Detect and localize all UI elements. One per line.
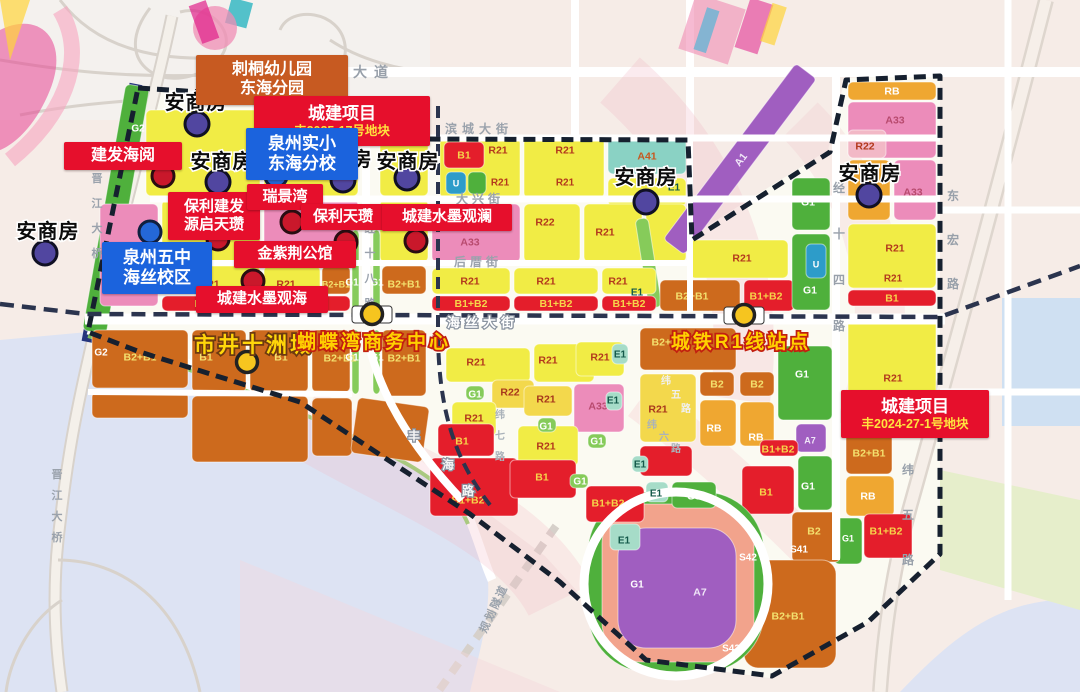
callout-chengjian-2024: 城建项目丰2024-27-1号地块: [841, 390, 989, 438]
callout-text: 海丝校区: [123, 268, 191, 288]
callout-baoli-tianzan: 保利天瓒: [301, 204, 385, 230]
map-canvas: G1R21R21B2+B1B2+B1B1+B2B1B1B2+B1B2+B1B2+…: [0, 0, 1080, 692]
callout-jinzijing: 金紫荆公馆: [234, 241, 356, 268]
callout-subtext: 丰2024-27-1号地块: [862, 417, 969, 432]
callout-text: 保利天瓒: [313, 208, 373, 226]
callout-text: 金紫荆公馆: [257, 245, 332, 263]
callout-text: 东海分校: [268, 154, 336, 174]
callout-text: 建发海阅: [91, 147, 155, 166]
callout-text: 泉州五中: [123, 248, 191, 268]
callout-text: 城建水墨观澜: [402, 208, 492, 226]
callout-jianfa-haiyue: 建发海阅: [64, 142, 182, 170]
callout-shuimo-guanhai: 城建水墨观海: [196, 286, 328, 313]
callout-text: 城建项目: [308, 104, 376, 124]
callout-text: 刺桐幼儿园: [232, 61, 312, 80]
callout-quanzhou-shixiao: 泉州实小东海分校: [246, 128, 358, 180]
callout-shuimo-guanlan: 城建水墨观澜: [382, 204, 512, 231]
callout-text: 保利建发: [184, 198, 244, 216]
callout-text: 泉州实小: [268, 134, 336, 154]
callout-text: 城建项目: [881, 397, 949, 417]
callout-text: 瑞景湾: [262, 188, 307, 206]
callouts-layer: 刺桐幼儿园东海分园城建项目丰2025-17号地块建发海阅泉州实小东海分校保利建发…: [0, 0, 1080, 692]
callout-text: 源启天瓒: [184, 216, 244, 234]
callout-text: 城建水墨观海: [217, 290, 307, 308]
